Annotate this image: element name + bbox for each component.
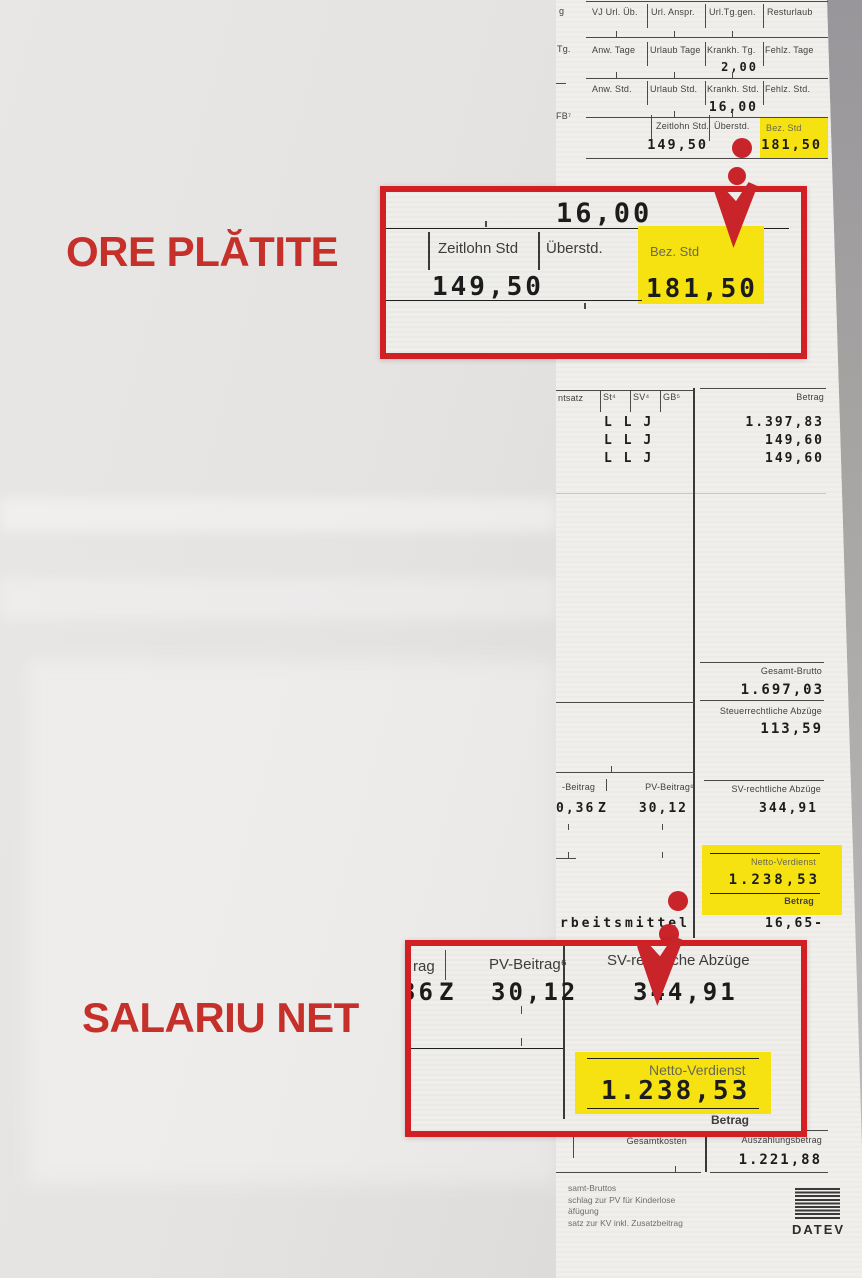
rule — [586, 37, 828, 38]
rule — [693, 388, 695, 938]
col-label: Resturlaub — [767, 7, 813, 17]
rule — [586, 78, 828, 79]
tick — [674, 31, 675, 37]
col-label: Url. Anspr. — [651, 7, 695, 17]
red-arrow-down-icon — [712, 182, 760, 248]
rule — [587, 1108, 759, 1109]
rule — [630, 390, 631, 412]
rule — [700, 388, 826, 389]
col-label: GB⁵ — [663, 392, 680, 402]
col-label: Betrag — [796, 392, 824, 402]
rule — [538, 232, 540, 270]
rule — [704, 780, 824, 781]
red-dot-marker — [668, 891, 688, 911]
col-label: Überstd. — [714, 121, 750, 131]
col-label: SV⁴ — [633, 392, 649, 402]
rule — [556, 1172, 701, 1173]
earnings-row-amount: 149,60 — [765, 433, 824, 448]
col-label: St⁴ — [603, 392, 616, 402]
zeitlohn-hours-value: 149,50 — [647, 137, 708, 153]
rule — [411, 1048, 563, 1049]
rule — [586, 158, 828, 159]
kv-contribution-value: 0,36 — [556, 801, 595, 816]
background-band — [0, 578, 556, 620]
col-label: Bez. Std — [766, 123, 802, 133]
tick — [732, 72, 733, 78]
paid-hours-value: 181,50 — [761, 137, 822, 153]
rule — [647, 81, 648, 105]
tick — [732, 111, 733, 117]
callout-kv-value: 36 — [405, 978, 436, 1006]
rule — [709, 115, 710, 141]
earnings-row-amount: 1.397,83 — [745, 415, 824, 430]
kv-flag: Z — [598, 801, 608, 816]
sv-deductions-value: 344,91 — [759, 801, 818, 816]
tick — [662, 852, 663, 858]
tick — [674, 111, 675, 117]
row-stub: FB⁷ — [556, 111, 571, 121]
rule — [600, 390, 601, 412]
rule — [763, 81, 764, 105]
rule — [763, 42, 764, 66]
callout-net-salary: rag PV-Beitrag⁶ SV-rechtliche Abzüge 36 … — [405, 940, 807, 1137]
col-label: Urlaub Std. — [650, 84, 697, 94]
arbeitsmittel-value: 16,65- — [765, 916, 824, 931]
callout-pv-value: 30,12 — [491, 978, 578, 1006]
tick — [732, 31, 733, 37]
annotated-payslip-image: g VJ Url. Üb. Url. Anspr. Url.Tg.gen. Re… — [0, 0, 862, 1278]
col-label: PV-Beitrag⁶ — [489, 956, 567, 973]
red-arrow-down-icon — [634, 936, 686, 1006]
row-stub: g — [559, 6, 564, 16]
rule — [556, 858, 576, 859]
annotation-net-salary: SALARIU NET — [82, 994, 359, 1042]
rule — [705, 4, 706, 28]
col-label: VJ Url. Üb. — [592, 7, 638, 17]
betrag-label: Betrag — [784, 896, 814, 906]
earnings-row-flags: L L J — [604, 415, 653, 430]
tick — [568, 824, 569, 830]
payout-value: 1.221,88 — [739, 1152, 822, 1168]
tick — [584, 303, 586, 309]
gesamtkosten-label: Gesamtkosten — [627, 1136, 687, 1146]
col-label: Krankh. Std. — [707, 84, 759, 94]
col-label: ntsatz — [558, 393, 583, 403]
rule — [587, 1058, 759, 1059]
rule — [710, 853, 820, 854]
col-label: Krankh. Tg. — [707, 45, 756, 55]
footnote-line: äfügung — [568, 1206, 683, 1218]
rule — [386, 300, 642, 301]
rule — [710, 1172, 828, 1173]
tick — [485, 221, 487, 227]
gross-total-value: 1.697,03 — [741, 682, 824, 698]
col-label: rag — [413, 958, 435, 975]
tick — [611, 766, 612, 772]
row-stub: Tg. — [557, 44, 571, 54]
tick — [521, 1038, 522, 1046]
annotation-paid-hours: ORE PLĂTITE — [66, 228, 338, 276]
earnings-row-amount: 149,60 — [765, 451, 824, 466]
col-label: Bez. Std — [650, 244, 699, 259]
rule — [647, 4, 648, 28]
datev-logo-icon — [795, 1188, 840, 1220]
rule — [428, 232, 430, 270]
col-label: Zeitlohn Std. — [656, 121, 709, 131]
total-label: Gesamt-Brutto — [761, 666, 822, 676]
sick-days-value: 2,00 — [721, 60, 758, 74]
callout-zeitlohn-value: 149,50 — [432, 272, 544, 302]
total-label: Steuerrechtliche Abzüge — [720, 706, 822, 716]
sick-hours-value: 16,00 — [709, 100, 758, 115]
rule — [556, 390, 694, 391]
rule — [705, 81, 706, 105]
background-band — [0, 498, 556, 532]
col-label: Anw. Tage — [592, 45, 635, 55]
rule — [660, 390, 661, 412]
earnings-row-flags: L L J — [604, 433, 653, 448]
netto-label: Netto-Verdienst — [751, 857, 816, 867]
rule — [700, 700, 824, 701]
rule — [563, 946, 565, 1119]
footnote-line: samt-Bruttos — [568, 1183, 683, 1195]
callout-hours-top-value: 16,00 — [556, 198, 652, 229]
footnotes: samt-Bruttos schlag zur PV für Kinderlos… — [568, 1183, 683, 1229]
col-label: Anw. Std. — [592, 84, 632, 94]
rule — [763, 4, 764, 28]
col-label: Url.Tg.gen. — [709, 7, 756, 17]
rule — [647, 42, 648, 66]
tick — [521, 1006, 522, 1014]
col-label: Fehlz. Tage — [765, 45, 814, 55]
rule — [556, 702, 695, 703]
datev-logo-text: DATEV — [792, 1222, 845, 1237]
footnote-line: schlag zur PV für Kinderlose — [568, 1195, 683, 1207]
rule — [445, 950, 446, 980]
rule — [700, 662, 824, 663]
col-label: -Beitrag — [562, 782, 595, 792]
tick — [675, 1166, 676, 1172]
rule — [556, 83, 566, 84]
rule — [556, 493, 826, 494]
rule — [556, 772, 695, 773]
col-label: Fehlz. Std. — [765, 84, 810, 94]
pv-contribution-value: 30,12 — [639, 801, 688, 816]
col-label: Zeitlohn Std — [438, 240, 518, 257]
col-label: SV-rechtliche Abzüge — [731, 784, 821, 794]
footnote-line: satz zur KV inkl. Zusatzbeitrag — [568, 1218, 683, 1230]
tick — [662, 824, 663, 830]
rule — [586, 1, 828, 2]
earnings-row-flags: L L J — [604, 451, 653, 466]
col-label: Überstd. — [546, 240, 603, 257]
netto-value: 1.238,53 — [729, 872, 820, 888]
col-label: Urlaub Tage — [650, 45, 701, 55]
callout-netto-value: 1.238,53 — [601, 1076, 750, 1106]
tick — [674, 72, 675, 78]
tax-deductions-value: 113,59 — [760, 721, 823, 737]
betrag-label: Betrag — [711, 1113, 749, 1127]
col-label: PV-Beitrag⁶ — [645, 782, 694, 792]
tick — [616, 72, 617, 78]
tick — [616, 31, 617, 37]
red-dot-marker — [732, 138, 752, 158]
callout-paid-hours-value: 181,50 — [646, 274, 758, 304]
callout-kv-flag: Z — [439, 978, 456, 1006]
rule — [705, 42, 706, 66]
rule — [606, 779, 607, 791]
rule — [710, 893, 820, 894]
